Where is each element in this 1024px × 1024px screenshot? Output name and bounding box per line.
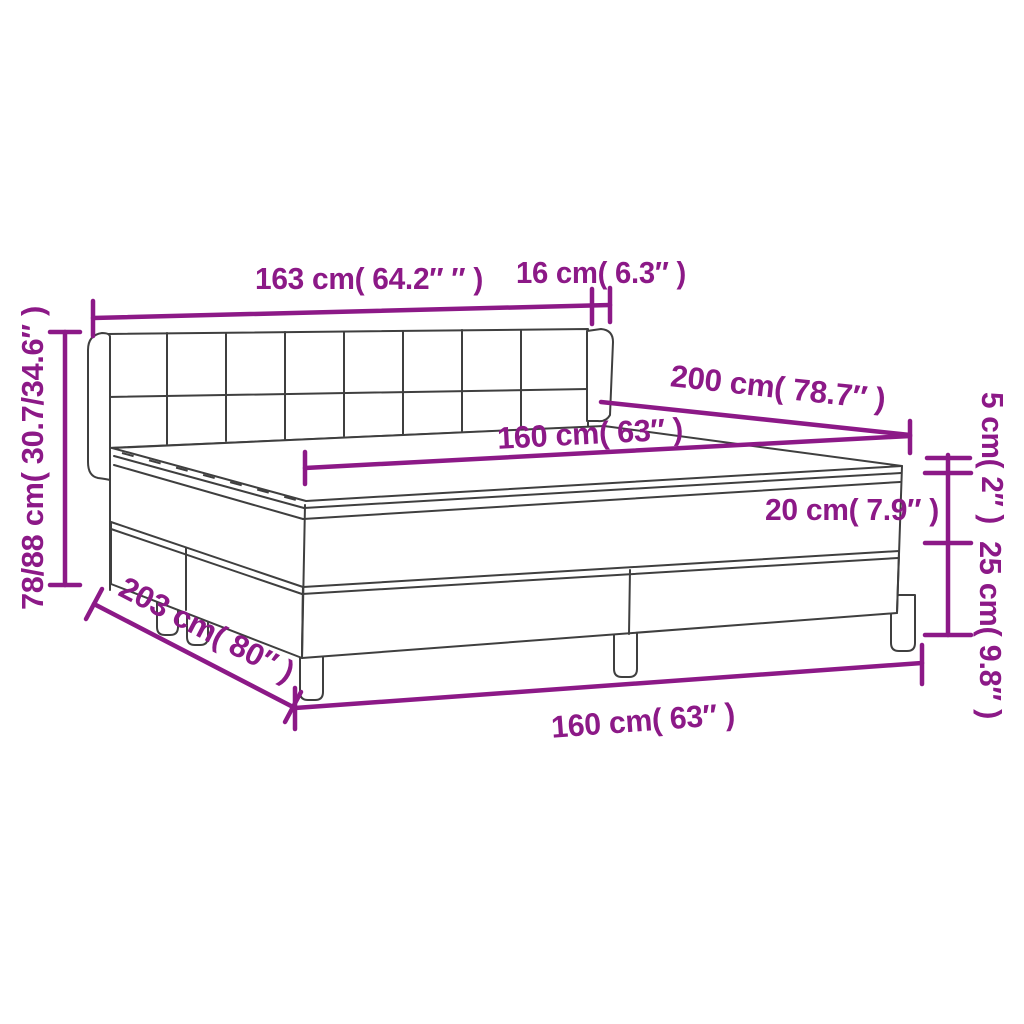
label-mattress-width-bottom: 160 cm( 63″ ) [550, 696, 736, 744]
right-wing [587, 329, 613, 421]
label-height-range: 78/88 cm( 30.7/34.6″ ) [15, 306, 50, 610]
label-mattress-height: 20 cm( 7.9″ ) [765, 492, 939, 527]
bed-line-drawing: 163 cm( 64.2″ ″ ) 16 cm( 6.3″ ) 78/88 cm… [0, 0, 1024, 1024]
label-headboard-width: 163 cm( 64.2″ ″ ) [255, 261, 483, 296]
label-bed-length: 200 cm( 78.7″ ) [669, 358, 888, 416]
left-wing [88, 333, 110, 480]
dimension-labels: 163 cm( 64.2″ ″ ) 16 cm( 6.3″ ) 78/88 cm… [15, 255, 1010, 745]
dim-right-heights [925, 455, 971, 635]
base-seam-front [629, 570, 630, 634]
label-base-height: 25 cm( 9.8″ ) [973, 541, 1008, 719]
dimension-diagram: 163 cm( 64.2″ ″ ) 16 cm( 6.3″ ) 78/88 cm… [0, 0, 1024, 1024]
base-front-face [302, 551, 899, 658]
label-wing-depth: 16 cm( 6.3″ ) [516, 255, 686, 290]
dim-height-range [50, 332, 80, 585]
label-topper-height: 5 cm( 2″ ) [975, 392, 1010, 524]
